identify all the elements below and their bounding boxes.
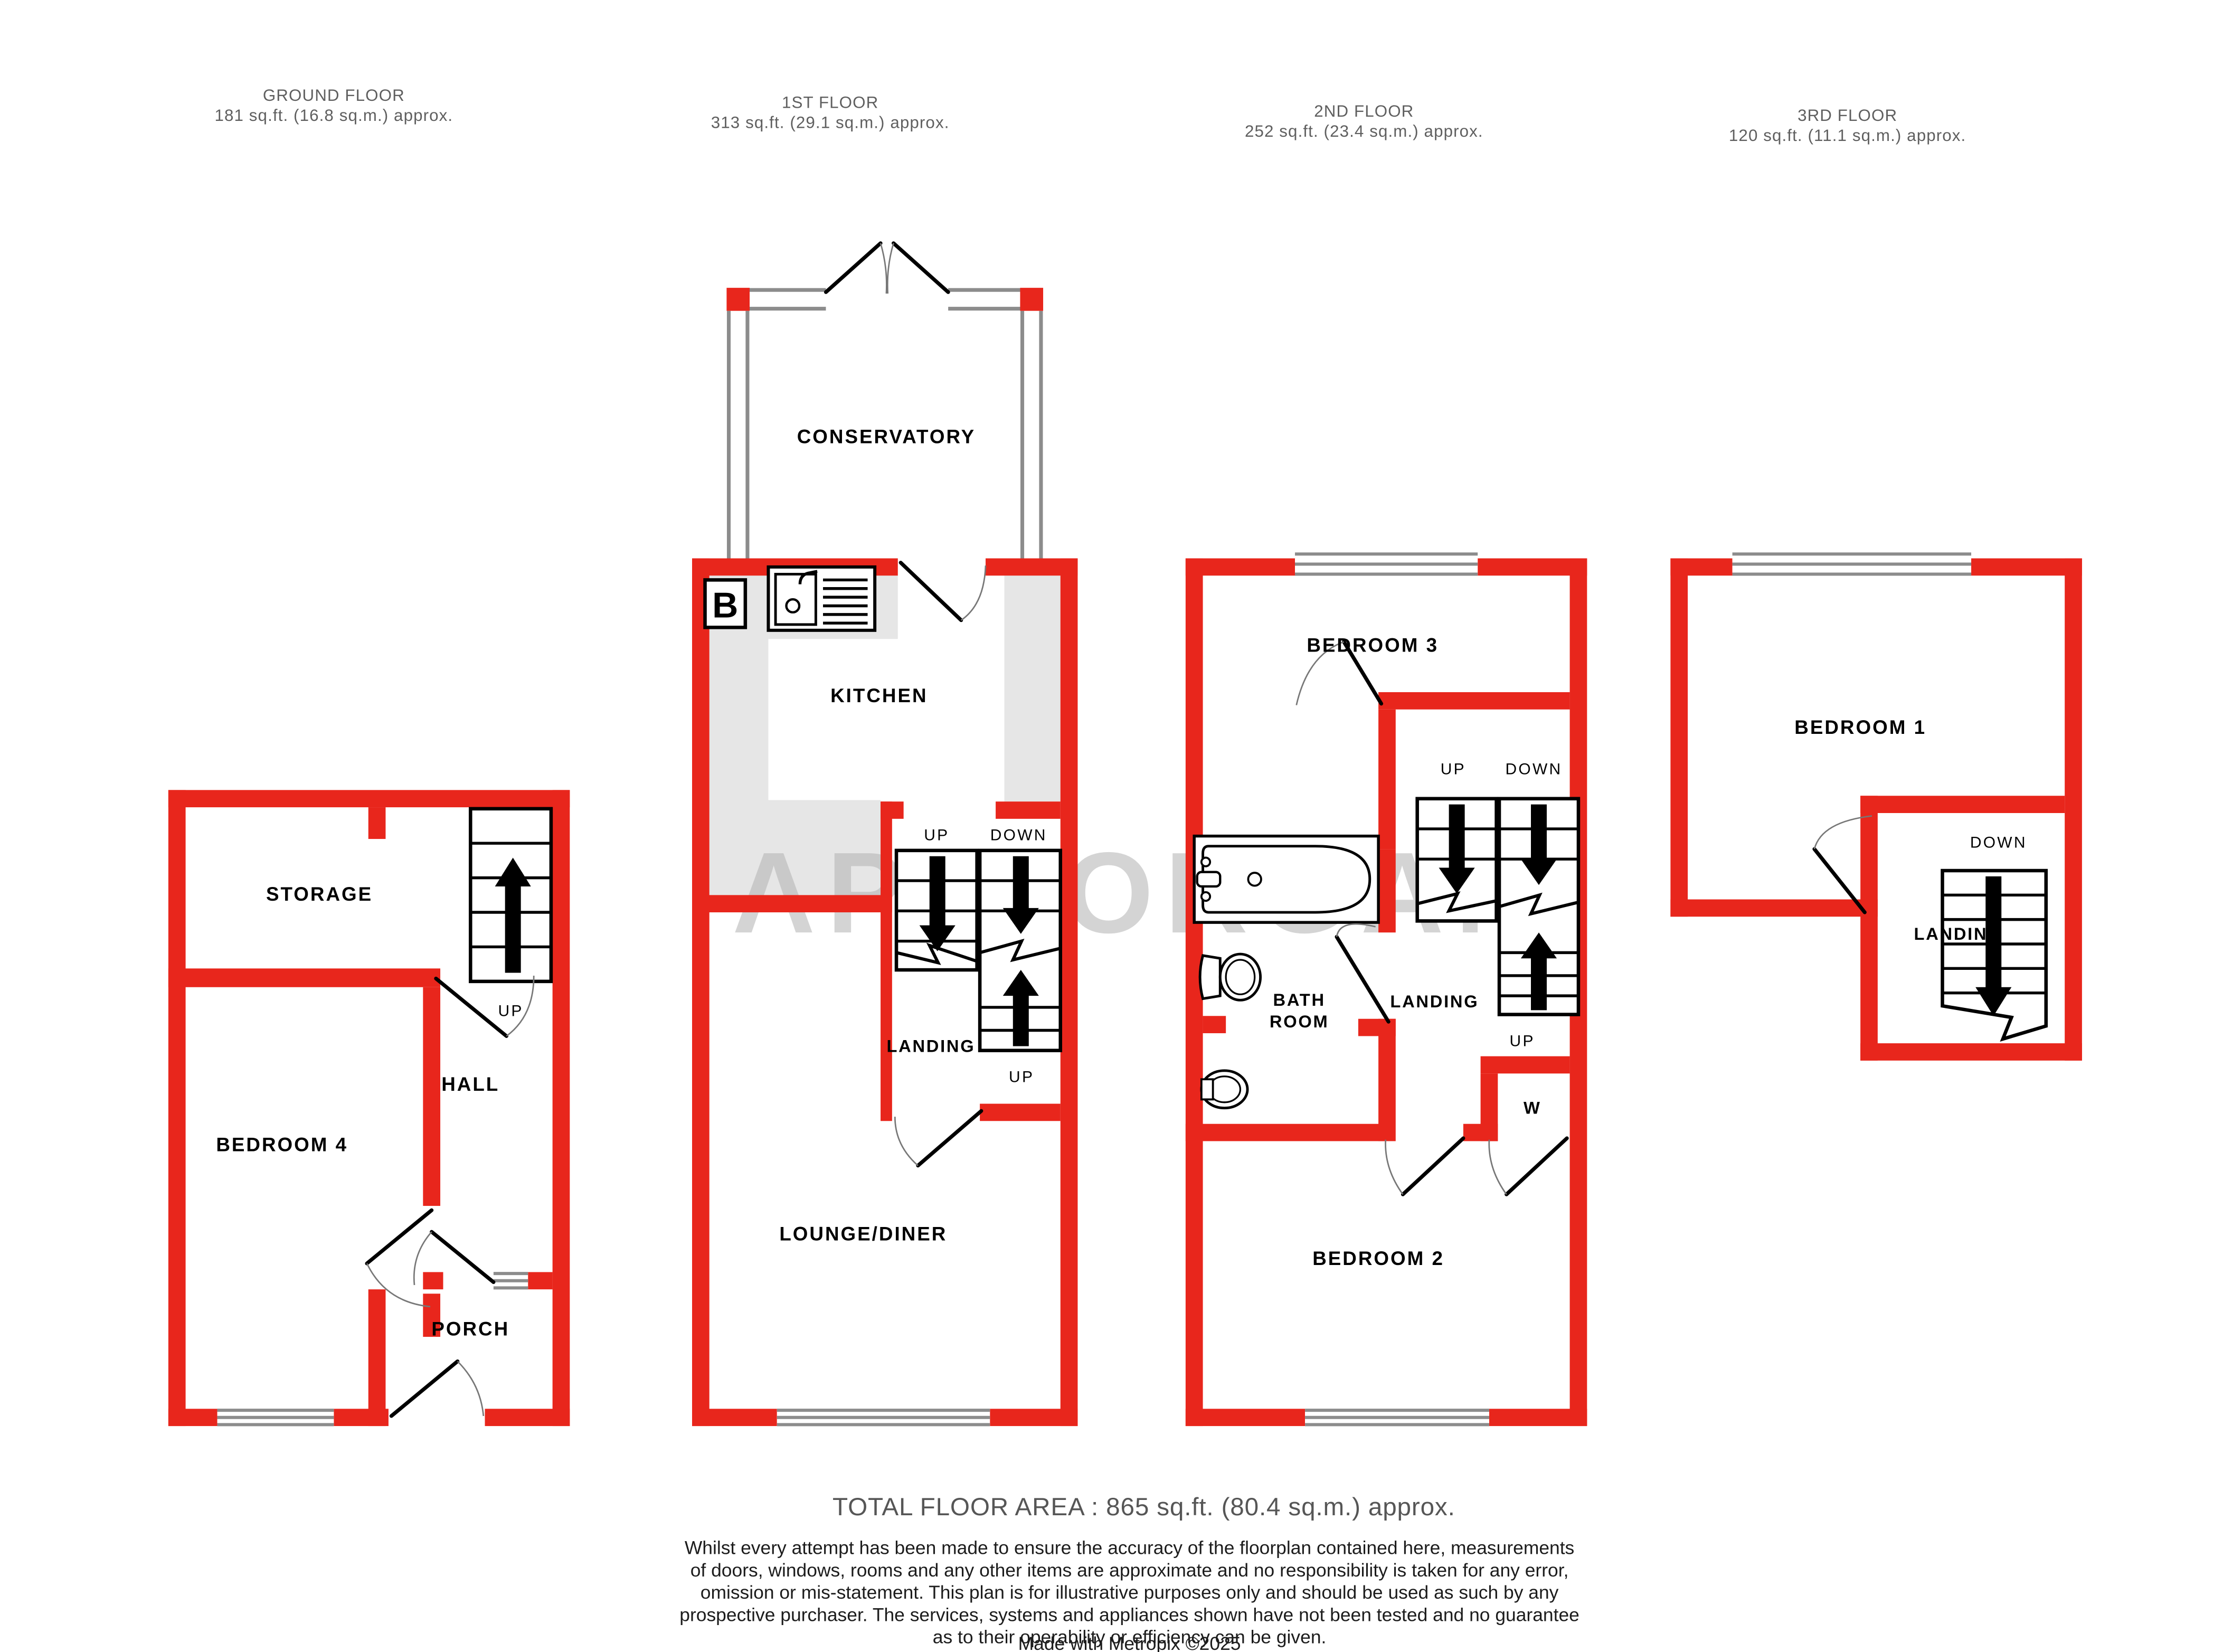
second-floor-area: 252 sq.ft. (23.4 sq.m.) approx. (1245, 122, 1483, 140)
total-floor-area: TOTAL FLOOR AREA : 865 sq.ft. (80.4 sq.m… (833, 1493, 1455, 1521)
bathroom-sink-icon (1202, 1071, 1247, 1108)
first-floor-staircase (896, 851, 1061, 1051)
third-floor-area: 120 sq.ft. (11.1 sq.m.) approx. (1729, 126, 1966, 145)
room-label-porch: PORCH (431, 1318, 509, 1339)
bedroom2-window (1305, 1409, 1489, 1426)
disclaimer-line-3: omission or mis-statement. This plan is … (701, 1582, 1559, 1603)
third-floor-title: 3RD FLOOR (1798, 106, 1897, 125)
disclaimer-line-4: prospective purchaser. The services, sys… (679, 1604, 1579, 1625)
second-floor-staircase (1417, 799, 1578, 1015)
third-stairs-down-label: DOWN (1970, 834, 2027, 851)
conservatory-corner-block (1020, 288, 1043, 311)
boiler-icon: B (705, 580, 745, 627)
second-stairs-up-label: UP (1441, 760, 1466, 778)
room-label-storage: STORAGE (266, 883, 373, 905)
room-label-bedroom2: BEDROOM 2 (1312, 1248, 1444, 1269)
room-label-landing2: LANDING (1390, 992, 1479, 1011)
ground-floor-plan: STORAGE HALL BEDROOM 4 PORCH UP (168, 790, 570, 1426)
room-label-landing1: LANDING (886, 1036, 975, 1055)
first-stairs-up2-label: UP (1009, 1069, 1034, 1086)
ground-staircase (470, 809, 551, 981)
wardrobe-door-swing (1489, 1138, 1567, 1194)
boiler-label: B (712, 585, 738, 625)
bedroom1-window (1733, 553, 1971, 576)
first-floor-title: 1ST FLOOR (782, 93, 878, 111)
first-stairs-up-label: UP (924, 827, 949, 844)
room-label-bathroom-line2: ROOM (1270, 1012, 1329, 1031)
second-stairs-down-label: DOWN (1505, 760, 1562, 778)
bathtub-icon (1194, 836, 1378, 923)
room-label-wardrobe: W (1524, 1098, 1541, 1118)
floor-headers: GROUND FLOOR 181 sq.ft. (16.8 sq.m.) app… (214, 86, 1966, 145)
conservatory-corner-block (726, 288, 750, 311)
room-label-bathroom-line1: BATH (1273, 990, 1326, 1009)
first-stairs-down-label: DOWN (990, 827, 1047, 844)
room-label-bedroom4: BEDROOM 4 (216, 1134, 348, 1155)
kitchen-conservatory-door-swing (901, 563, 986, 620)
ground-floor-title: GROUND FLOOR (263, 86, 405, 105)
bedroom2-door-swing (1386, 1138, 1463, 1194)
second-stairs-up2-label: UP (1510, 1033, 1535, 1050)
room-label-hall: HALL (441, 1073, 499, 1095)
room-label-kitchen: KITCHEN (830, 685, 928, 706)
conservatory (726, 243, 1043, 561)
second-floor-plan: BEDROOM 3 UP DOWN BATH ROOM LANDING UP W… (1186, 553, 1587, 1426)
toilet-icon (1200, 954, 1260, 1000)
footer: TOTAL FLOOR AREA : 865 sq.ft. (80.4 sq.m… (679, 1493, 1579, 1652)
metropix-credit: Made with Metropix ©2025 (1018, 1633, 1241, 1652)
room-label-bedroom1: BEDROOM 1 (1794, 716, 1926, 738)
lounge-window (777, 1409, 990, 1426)
kitchen-sink-icon (768, 567, 875, 630)
first-floor-area: 313 sq.ft. (29.1 sq.m.) approx. (711, 114, 950, 132)
third-floor-plan: LANDING BEDROOM 1 DOWN (1670, 553, 2082, 1061)
room-label-bedroom3: BEDROOM 3 (1307, 635, 1439, 656)
room-label-lounge-diner: LOUNGE/DINER (779, 1223, 947, 1244)
lounge-door-swing (895, 1111, 981, 1166)
hall-porch-window (494, 1273, 528, 1288)
disclaimer-line-2: of doors, windows, rooms and any other i… (690, 1560, 1569, 1581)
conservatory-french-doors (826, 243, 948, 294)
room-label-conservatory: CONSERVATORY (797, 426, 976, 447)
ground-stairs-up-label: UP (498, 1002, 523, 1019)
porch-entrance-door-swing (391, 1361, 483, 1416)
disclaimer-line-1: Whilst every attempt has been made to en… (685, 1537, 1574, 1559)
bedroom3-window (1295, 553, 1478, 576)
ground-floor-area: 181 sq.ft. (16.8 sq.m.) approx. (214, 106, 453, 125)
bedroom4-window (217, 1409, 334, 1426)
second-floor-title: 2ND FLOOR (1314, 102, 1414, 120)
floorplan-canvas: GROUND FLOOR 181 sq.ft. (16.8 sq.m.) app… (0, 0, 2223, 1652)
